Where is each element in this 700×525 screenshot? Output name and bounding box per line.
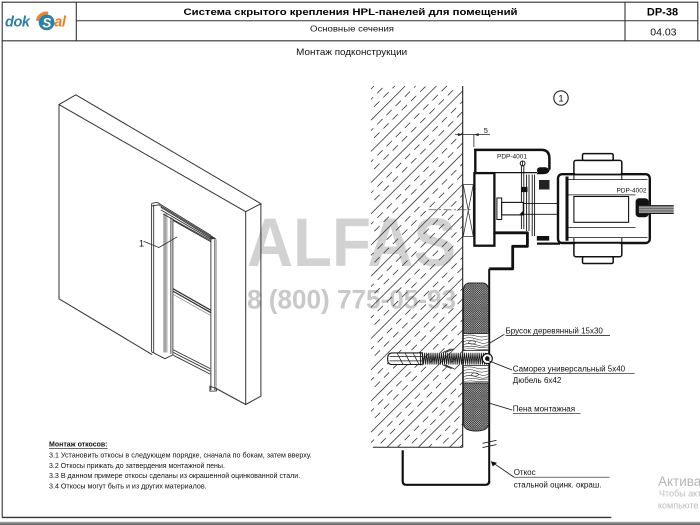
svg-text:dok: dok — [5, 15, 31, 31]
svg-text:Монтаж откосов:: Монтаж откосов: — [49, 440, 108, 449]
svg-text:04.03: 04.03 — [650, 26, 676, 38]
svg-text:Дюбель 6х42: Дюбель 6х42 — [513, 376, 562, 385]
svg-text:Брусок деревянный 15х30: Брусок деревянный 15х30 — [506, 327, 604, 336]
svg-text:8 (800) 775-05-93: 8 (800) 775-05-93 — [247, 285, 456, 315]
svg-text:1: 1 — [139, 239, 144, 249]
svg-text:3.4 Откосы могут быть и из дру: 3.4 Откосы могут быть и из других матери… — [49, 482, 207, 491]
svg-text:Саморез универсальный 5х40: Саморез универсальный 5х40 — [513, 364, 626, 373]
svg-text:Система скрытого крепления HPL: Система скрытого крепления HPL-панелей д… — [184, 7, 518, 18]
svg-text:Откос: Откос — [514, 468, 536, 477]
svg-text:PDP-4001: PDP-4001 — [497, 154, 527, 161]
svg-text:компьюте: компьюте — [658, 501, 698, 511]
svg-text:S: S — [42, 15, 51, 30]
svg-text:1: 1 — [558, 94, 563, 105]
svg-text:3.1 Установить откосы в следую: 3.1 Установить откосы в следующем порядк… — [49, 450, 312, 459]
svg-text:PDP-4002: PDP-4002 — [617, 188, 647, 195]
svg-text:Монтаж подконструкции: Монтаж подконструкции — [296, 46, 407, 57]
svg-text:5: 5 — [484, 126, 488, 135]
svg-text:3.3 В данном примере откосы сд: 3.3 В данном примере откосы сделаны из о… — [49, 471, 300, 480]
svg-text:3.2 Откосы прижать до затверде: 3.2 Откосы прижать до затвердения монтаж… — [49, 461, 225, 470]
svg-text:ALFAS: ALFAS — [247, 204, 456, 281]
svg-text:Пена монтажная: Пена монтажная — [513, 404, 575, 413]
svg-text:Активац: Активац — [658, 474, 700, 489]
svg-text:стальной оцинк. окраш.: стальной оцинк. окраш. — [514, 481, 602, 490]
svg-text:Основные сечения: Основные сечения — [310, 23, 394, 33]
svg-text:al: al — [54, 15, 67, 31]
svg-text:Чтобы акт: Чтобы акт — [659, 489, 700, 499]
svg-text:DP-38: DP-38 — [647, 7, 678, 19]
